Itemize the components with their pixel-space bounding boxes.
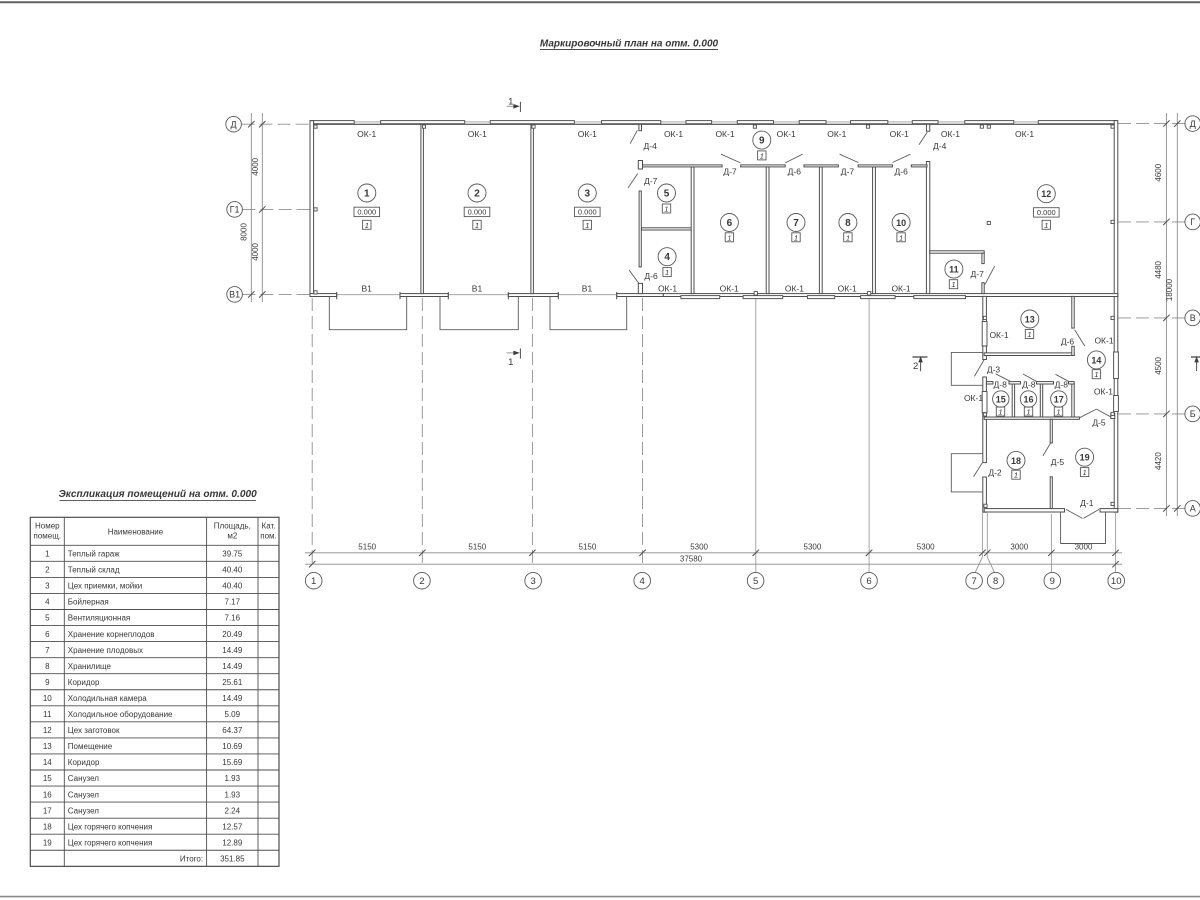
svg-text:5150: 5150 bbox=[579, 543, 597, 552]
svg-text:ОК-1: ОК-1 bbox=[890, 129, 909, 139]
svg-text:12: 12 bbox=[43, 726, 52, 735]
svg-text:А: А bbox=[1190, 504, 1196, 514]
svg-text:Д-7: Д-7 bbox=[644, 176, 658, 186]
svg-text:5300: 5300 bbox=[917, 543, 935, 552]
svg-text:8: 8 bbox=[993, 576, 998, 587]
svg-text:1: 1 bbox=[1014, 471, 1018, 480]
svg-text:25.61: 25.61 bbox=[222, 678, 243, 687]
svg-text:10: 10 bbox=[43, 694, 52, 703]
svg-text:18: 18 bbox=[43, 822, 52, 831]
svg-text:Д-8: Д-8 bbox=[994, 379, 1008, 389]
svg-text:Д-2: Д-2 bbox=[988, 467, 1002, 477]
svg-text:1: 1 bbox=[365, 221, 369, 230]
svg-text:Холодильное оборудование: Холодильное оборудование bbox=[68, 710, 173, 719]
svg-text:Д-6: Д-6 bbox=[895, 167, 909, 177]
svg-text:Цех приемки, мойки: Цех приемки, мойки bbox=[68, 582, 142, 591]
svg-text:9: 9 bbox=[759, 136, 765, 147]
svg-text:ОК-1: ОК-1 bbox=[777, 129, 796, 139]
svg-text:ОК-1: ОК-1 bbox=[578, 129, 597, 139]
svg-text:Маркировочный план на отм. 0.0: Маркировочный план на отм. 0.000 bbox=[540, 39, 719, 50]
svg-text:Коридор: Коридор bbox=[68, 678, 100, 687]
svg-text:Г: Г bbox=[1190, 217, 1195, 227]
svg-text:1: 1 bbox=[1027, 330, 1031, 339]
svg-text:ОК-1: ОК-1 bbox=[664, 129, 683, 139]
svg-text:Наименование: Наименование bbox=[108, 528, 164, 537]
svg-text:0.000: 0.000 bbox=[1037, 208, 1056, 217]
svg-text:Экспликация помещений на отм.: Экспликация помещений на отм. 0.000 bbox=[59, 489, 258, 500]
svg-text:В1: В1 bbox=[582, 284, 593, 294]
svg-text:Д-8: Д-8 bbox=[1055, 379, 1069, 389]
svg-text:15: 15 bbox=[996, 394, 1006, 404]
svg-text:4000: 4000 bbox=[251, 242, 260, 260]
svg-text:0.000: 0.000 bbox=[578, 208, 597, 217]
svg-text:8: 8 bbox=[45, 662, 50, 671]
svg-text:1: 1 bbox=[1094, 370, 1098, 379]
svg-text:351.85: 351.85 bbox=[220, 854, 245, 863]
svg-text:39.75: 39.75 bbox=[222, 550, 243, 559]
svg-text:5150: 5150 bbox=[358, 543, 376, 552]
svg-text:40.40: 40.40 bbox=[222, 566, 243, 575]
svg-text:15: 15 bbox=[43, 774, 52, 783]
svg-text:ОК-1: ОК-1 bbox=[1094, 387, 1113, 397]
svg-text:13: 13 bbox=[43, 742, 52, 751]
svg-text:Д-7: Д-7 bbox=[841, 167, 855, 177]
svg-text:3: 3 bbox=[45, 582, 50, 591]
svg-text:5300: 5300 bbox=[804, 543, 822, 552]
svg-text:15.69: 15.69 bbox=[222, 758, 243, 767]
svg-text:11: 11 bbox=[949, 265, 959, 275]
svg-text:Хранилище: Хранилище bbox=[68, 662, 112, 671]
svg-text:ОК-1: ОК-1 bbox=[891, 284, 910, 294]
svg-text:5150: 5150 bbox=[468, 543, 486, 552]
svg-text:ОК-1: ОК-1 bbox=[720, 284, 739, 294]
svg-text:1: 1 bbox=[664, 205, 668, 214]
svg-text:2.24: 2.24 bbox=[225, 806, 241, 815]
svg-text:14: 14 bbox=[43, 758, 52, 767]
svg-text:ОК-1: ОК-1 bbox=[658, 284, 677, 294]
svg-text:1.93: 1.93 bbox=[225, 790, 241, 799]
svg-text:1: 1 bbox=[508, 357, 513, 368]
svg-text:7.17: 7.17 bbox=[225, 598, 241, 607]
svg-text:Цех заготовок: Цех заготовок bbox=[68, 726, 120, 735]
svg-text:20.49: 20.49 bbox=[222, 630, 243, 639]
svg-text:Вентиляционная: Вентиляционная bbox=[68, 614, 130, 623]
svg-text:Номер: Номер bbox=[35, 522, 60, 531]
svg-text:1: 1 bbox=[364, 188, 370, 199]
svg-text:В: В bbox=[1190, 313, 1196, 323]
svg-text:9: 9 bbox=[1050, 576, 1055, 587]
svg-text:16: 16 bbox=[1023, 394, 1033, 404]
svg-text:14.49: 14.49 bbox=[222, 646, 243, 655]
svg-text:64.37: 64.37 bbox=[222, 726, 243, 735]
svg-text:Санузел: Санузел bbox=[68, 774, 99, 783]
svg-text:16: 16 bbox=[43, 790, 52, 799]
svg-text:1: 1 bbox=[508, 97, 513, 108]
svg-text:помещ.: помещ. bbox=[34, 532, 62, 541]
svg-text:Д: Д bbox=[231, 119, 237, 129]
svg-text:5: 5 bbox=[753, 576, 758, 587]
svg-text:9: 9 bbox=[45, 678, 50, 687]
svg-text:1: 1 bbox=[1056, 408, 1060, 417]
svg-text:Хранение корнеплодов: Хранение корнеплодов bbox=[68, 630, 155, 639]
svg-text:3000: 3000 bbox=[1010, 543, 1028, 552]
svg-text:0.000: 0.000 bbox=[357, 208, 376, 217]
svg-text:Д-7: Д-7 bbox=[723, 167, 737, 177]
svg-text:1: 1 bbox=[585, 221, 589, 230]
svg-text:1: 1 bbox=[794, 233, 798, 242]
svg-text:14.49: 14.49 bbox=[222, 662, 243, 671]
svg-text:ОК-1: ОК-1 bbox=[941, 129, 960, 139]
svg-text:Б: Б bbox=[1190, 409, 1196, 419]
svg-text:В1: В1 bbox=[472, 284, 483, 294]
svg-text:1: 1 bbox=[1083, 468, 1087, 477]
svg-text:0.000: 0.000 bbox=[468, 208, 487, 217]
svg-text:4500: 4500 bbox=[1154, 356, 1163, 374]
svg-text:37580: 37580 bbox=[680, 554, 703, 563]
svg-text:12.89: 12.89 bbox=[222, 838, 243, 847]
svg-text:6: 6 bbox=[45, 630, 50, 639]
svg-text:Г1: Г1 bbox=[230, 205, 240, 215]
svg-text:1: 1 bbox=[998, 408, 1002, 417]
svg-text:ОК-1: ОК-1 bbox=[838, 284, 857, 294]
svg-text:Бойлерная: Бойлерная bbox=[68, 598, 109, 607]
svg-text:Кат.: Кат. bbox=[262, 522, 276, 531]
svg-text:2: 2 bbox=[45, 566, 50, 575]
svg-text:14.49: 14.49 bbox=[222, 694, 243, 703]
svg-text:В1: В1 bbox=[361, 284, 372, 294]
svg-text:5.09: 5.09 bbox=[225, 710, 241, 719]
svg-text:4: 4 bbox=[45, 598, 50, 607]
svg-text:13: 13 bbox=[1025, 314, 1035, 324]
svg-text:18000: 18000 bbox=[1165, 278, 1174, 301]
svg-text:Теплый гараж: Теплый гараж bbox=[68, 550, 120, 559]
svg-text:ОК-1: ОК-1 bbox=[1015, 129, 1034, 139]
svg-text:12: 12 bbox=[1041, 189, 1051, 199]
svg-text:Коридор: Коридор bbox=[68, 758, 100, 767]
svg-text:Холодильная камера: Холодильная камера bbox=[68, 694, 147, 703]
svg-text:Цех горячего копчения: Цех горячего копчения bbox=[68, 822, 153, 831]
svg-text:2: 2 bbox=[419, 576, 424, 587]
svg-text:7.16: 7.16 bbox=[225, 614, 241, 623]
svg-text:Д-4: Д-4 bbox=[644, 141, 658, 151]
svg-text:Помещение: Помещение bbox=[68, 742, 113, 751]
svg-text:ОК-1: ОК-1 bbox=[1094, 335, 1113, 345]
svg-text:3: 3 bbox=[585, 188, 591, 199]
svg-text:4480: 4480 bbox=[1154, 260, 1163, 278]
svg-text:ОК-1: ОК-1 bbox=[827, 129, 846, 139]
svg-text:12.57: 12.57 bbox=[222, 822, 243, 831]
svg-text:Д-6: Д-6 bbox=[644, 271, 658, 281]
svg-text:1: 1 bbox=[760, 151, 764, 160]
svg-text:5: 5 bbox=[664, 188, 670, 199]
svg-text:7: 7 bbox=[45, 646, 50, 655]
svg-text:ОК-1: ОК-1 bbox=[989, 330, 1008, 340]
svg-text:Д-7: Д-7 bbox=[971, 269, 985, 279]
svg-text:Д-5: Д-5 bbox=[1051, 457, 1065, 467]
svg-text:10: 10 bbox=[896, 218, 906, 228]
svg-text:1: 1 bbox=[951, 280, 955, 289]
svg-text:2: 2 bbox=[913, 361, 918, 372]
svg-text:Д-3: Д-3 bbox=[987, 364, 1001, 374]
svg-text:10: 10 bbox=[1111, 576, 1122, 587]
svg-text:ОК-1: ОК-1 bbox=[357, 129, 376, 139]
svg-text:1: 1 bbox=[45, 550, 50, 559]
svg-text:В1: В1 bbox=[229, 290, 240, 300]
svg-text:19: 19 bbox=[1080, 453, 1090, 463]
svg-text:ОК-1: ОК-1 bbox=[715, 129, 734, 139]
svg-text:ОК-1: ОК-1 bbox=[964, 393, 983, 403]
svg-text:пом.: пом. bbox=[260, 532, 277, 541]
svg-text:1: 1 bbox=[727, 233, 731, 242]
svg-text:2: 2 bbox=[474, 188, 480, 199]
svg-text:7: 7 bbox=[793, 218, 799, 229]
svg-text:м2: м2 bbox=[227, 532, 238, 541]
svg-text:8: 8 bbox=[845, 218, 851, 229]
svg-text:14: 14 bbox=[1091, 355, 1101, 365]
svg-text:17: 17 bbox=[1054, 394, 1064, 404]
svg-text:Д-1: Д-1 bbox=[1080, 498, 1094, 508]
svg-text:6: 6 bbox=[727, 218, 733, 229]
svg-text:4420: 4420 bbox=[1154, 452, 1163, 470]
svg-text:1: 1 bbox=[1044, 221, 1048, 230]
svg-text:1: 1 bbox=[1026, 408, 1030, 417]
svg-text:5: 5 bbox=[45, 614, 50, 623]
svg-text:Теплый склад: Теплый склад bbox=[68, 566, 120, 575]
svg-text:1: 1 bbox=[899, 233, 903, 242]
svg-text:19: 19 bbox=[43, 838, 52, 847]
svg-text:40.40: 40.40 bbox=[222, 582, 243, 591]
svg-text:Д: Д bbox=[1190, 119, 1196, 129]
svg-text:4: 4 bbox=[640, 576, 645, 587]
svg-text:Цех горячего копчения: Цех горячего копчения bbox=[68, 838, 153, 847]
svg-text:Д-4: Д-4 bbox=[933, 141, 947, 151]
svg-text:18: 18 bbox=[1011, 456, 1021, 466]
svg-text:6: 6 bbox=[866, 576, 871, 587]
svg-text:4: 4 bbox=[664, 252, 670, 263]
svg-text:ОК-1: ОК-1 bbox=[785, 284, 804, 294]
svg-text:Д-8: Д-8 bbox=[1022, 379, 1036, 389]
svg-text:17: 17 bbox=[43, 806, 52, 815]
svg-text:11: 11 bbox=[43, 710, 52, 719]
svg-text:7: 7 bbox=[971, 576, 976, 587]
svg-text:10.69: 10.69 bbox=[222, 742, 243, 751]
svg-text:5300: 5300 bbox=[690, 543, 708, 552]
svg-text:Хранение плодовых: Хранение плодовых bbox=[68, 646, 143, 655]
svg-text:Санузел: Санузел bbox=[68, 806, 99, 815]
svg-text:Итого:: Итого: bbox=[180, 854, 203, 863]
svg-text:1: 1 bbox=[311, 576, 316, 587]
svg-text:1: 1 bbox=[475, 221, 479, 230]
svg-text:1: 1 bbox=[846, 233, 850, 242]
svg-text:3: 3 bbox=[530, 576, 535, 587]
svg-text:Д-6: Д-6 bbox=[1061, 337, 1075, 347]
svg-text:Д-5: Д-5 bbox=[1092, 418, 1106, 428]
svg-text:4000: 4000 bbox=[251, 157, 260, 175]
svg-text:1: 1 bbox=[665, 268, 669, 277]
svg-text:4600: 4600 bbox=[1154, 163, 1163, 181]
svg-text:Площадь,: Площадь, bbox=[214, 522, 251, 531]
svg-text:Д-6: Д-6 bbox=[788, 167, 802, 177]
svg-text:8000: 8000 bbox=[240, 223, 249, 241]
svg-text:Санузел: Санузел bbox=[68, 790, 99, 799]
svg-text:ОК-1: ОК-1 bbox=[468, 129, 487, 139]
svg-text:1.93: 1.93 bbox=[225, 774, 241, 783]
